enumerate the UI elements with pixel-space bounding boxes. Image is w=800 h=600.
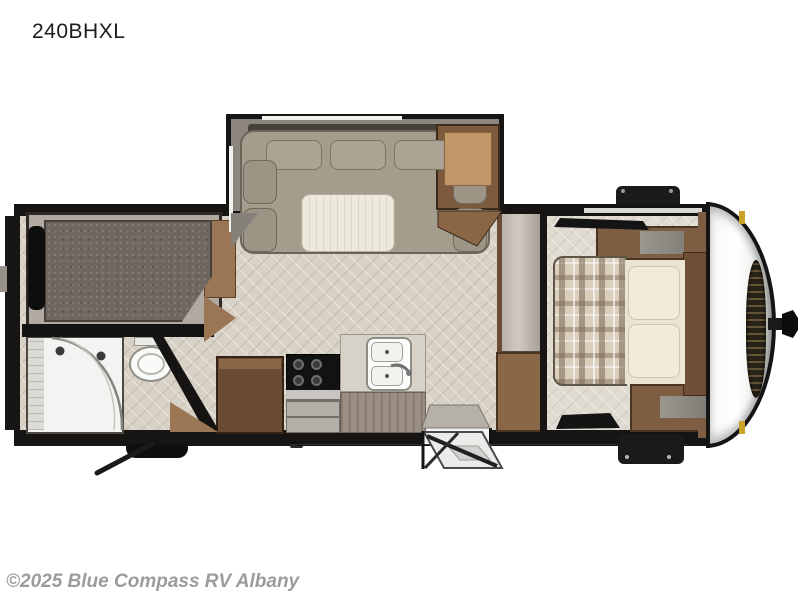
refrigerator-top [219, 359, 281, 369]
dinette-table [301, 194, 395, 252]
bedroom-cabinet-window [640, 231, 684, 254]
dinette-side-cushion [453, 208, 487, 252]
burner-icon [293, 375, 304, 386]
dinette-back-cushion [394, 140, 450, 170]
kitchen-counter-lower [340, 392, 426, 433]
dinette-side-cushion [243, 208, 277, 252]
burner-icon [311, 359, 322, 370]
dresser-window [660, 396, 706, 418]
entertainment-cabinet [497, 214, 543, 354]
bedroom-window [584, 208, 702, 213]
slideout-window-top [262, 116, 402, 120]
cap-hinge-top [739, 211, 745, 224]
bedroom-divider-wall [540, 212, 547, 438]
entry-door-opening [420, 428, 492, 444]
slideout-window-left [229, 146, 233, 232]
toilet-seat [137, 353, 165, 375]
stove-front-trim [286, 390, 340, 399]
stabilizer-box-bottom [618, 434, 684, 464]
bunk-bed-mattress [44, 220, 212, 322]
slideout-cabinet-top [444, 132, 492, 186]
entry-wardrobe [496, 352, 544, 432]
entry-step-tread [448, 446, 490, 460]
bunk-window [28, 226, 45, 310]
floorplan-model-label: 240BHXL [32, 20, 125, 44]
dinette-back-cushion [330, 140, 386, 170]
bed-pillow [628, 324, 680, 378]
bed-pillow [628, 266, 680, 320]
toilet-tank [134, 337, 164, 346]
sink-drain-icon [385, 374, 389, 378]
stove-base-drawers [286, 399, 340, 433]
screw-icon [625, 455, 629, 459]
burner-icon [311, 375, 322, 386]
screw-icon [621, 189, 625, 193]
burner-icon [293, 359, 304, 370]
hitch-coupler [782, 310, 798, 338]
shower-tile-wall [28, 338, 44, 430]
bed-plaid-blanket [553, 256, 627, 386]
rv-floorplan-canvas: 240BHXL [0, 0, 800, 600]
under-bunk-wall [22, 324, 214, 337]
rear-bumper-bracket [0, 266, 7, 292]
cap-hinge-bottom [739, 421, 745, 434]
sink-drain-icon [385, 350, 389, 354]
screw-icon [669, 189, 673, 193]
brand-logo [746, 260, 766, 398]
screw-icon [667, 455, 671, 459]
dinette-side-cushion [243, 160, 277, 204]
dealer-watermark: ©2025 Blue Compass RV Albany [6, 571, 299, 593]
